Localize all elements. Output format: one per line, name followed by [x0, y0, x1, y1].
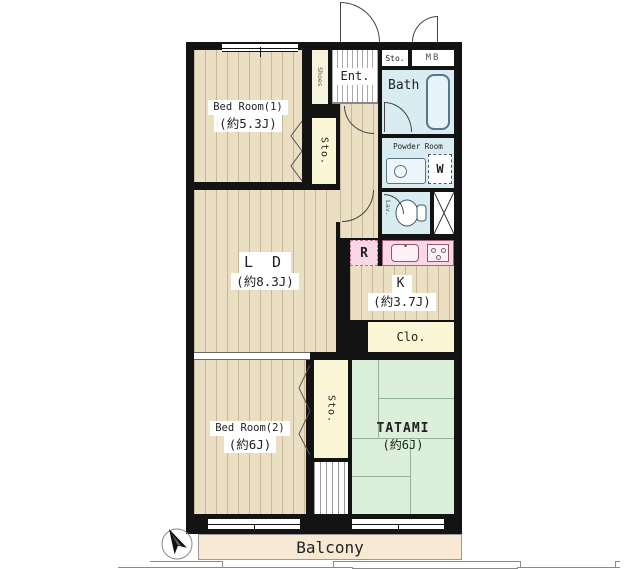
powder-room-label: Powder Room — [382, 142, 454, 151]
shaft-x-icon — [434, 192, 454, 234]
refrigerator-space: R — [350, 240, 378, 266]
sliding-partition — [194, 352, 310, 360]
window-tick — [260, 47, 261, 57]
entrance-name: Ent. — [336, 68, 375, 85]
room-tatami: TATAMI (約6J) — [352, 360, 454, 514]
washing-machine-label: W — [436, 162, 443, 176]
bathtub-icon — [426, 74, 450, 130]
washbasin-icon — [386, 158, 426, 184]
sliding-door-track — [314, 462, 348, 514]
stove-icon — [427, 244, 449, 262]
bedroom2-label: Bed Room(2) (約6J) — [194, 360, 306, 514]
shoes-cabinet: Shoes — [312, 50, 328, 104]
meter-box: MB — [412, 50, 454, 66]
closet: Clo. — [368, 322, 454, 352]
meter-box-door-swing-icon — [412, 16, 438, 42]
kitchen-sink-icon — [391, 244, 419, 262]
bedroom1-window — [222, 43, 298, 52]
ld-name: L D — [239, 252, 291, 273]
floor-plan: Bed Room(1) (約5.3J) Shoes Ent. Sto. MB B… — [0, 0, 640, 569]
bedroom1-name: Bed Room(1) — [208, 100, 288, 115]
bedroom2-area: (約6J) — [224, 436, 277, 454]
tatami-area: (約6J) — [383, 436, 424, 453]
folding-door-icon — [290, 120, 302, 182]
bedroom1-label: Bed Room(1) (約5.3J) — [194, 50, 302, 182]
bedroom1-area: (約5.3J) — [214, 115, 282, 133]
room-entrance: Ent. — [332, 50, 378, 104]
refrigerator-label: R — [360, 246, 368, 261]
folding-door-icon — [298, 364, 310, 456]
room-ld: L D (約8.3J) — [194, 190, 336, 352]
kitchen-counter — [382, 240, 454, 266]
storage-top: Sto. — [382, 50, 408, 66]
storage-bottom: Sto. — [314, 360, 348, 458]
burner-icon — [431, 248, 436, 253]
storage-top-label: Sto. — [385, 54, 404, 63]
room-bedroom2: Bed Room(2) (約6J) — [194, 360, 306, 514]
balcony: Balcony — [198, 534, 462, 560]
bedroom2-name: Bed Room(2) — [210, 421, 290, 436]
shoes-label: Shoes — [316, 67, 324, 87]
storage-hall: Sto. — [312, 118, 336, 184]
ld-label: L D (約8.3J) — [194, 190, 336, 352]
balcony-label: Balcony — [296, 538, 363, 557]
closet-label: Clo. — [397, 330, 426, 344]
front-door-swing-icon — [340, 2, 380, 42]
ld-area: (約8.3J) — [231, 273, 299, 291]
washbasin-bowl-icon — [394, 165, 407, 178]
north-arrow-icon — [156, 522, 198, 564]
faucet-icon — [404, 244, 407, 247]
kitchen-label: K (約3.7J) — [350, 266, 454, 320]
room-bedroom1: Bed Room(1) (約5.3J) — [194, 50, 302, 182]
burner-icon — [436, 255, 441, 260]
pipe-shaft — [434, 192, 454, 234]
entrance-label: Ent. — [332, 50, 378, 102]
room-kitchen: K (約3.7J) — [350, 266, 454, 320]
washing-machine: W — [428, 154, 452, 184]
tatami-label: TATAMI (約6J) — [352, 360, 454, 514]
kitchen-name: K — [392, 275, 413, 293]
storage-bottom-label: Sto. — [326, 395, 337, 423]
burner-icon — [441, 248, 446, 253]
kitchen-area: (約3.7J) — [368, 293, 436, 311]
bedroom2-window — [208, 518, 300, 530]
tatami-window — [352, 518, 444, 530]
tatami-name: TATAMI — [377, 421, 430, 436]
ld-door-opening — [336, 190, 340, 222]
meter-box-label: MB — [426, 53, 441, 63]
window-tick — [398, 524, 399, 534]
room-powder: Powder Room W — [382, 138, 454, 188]
storage-hall-label: Sto. — [319, 137, 330, 165]
window-tick — [254, 524, 255, 534]
bath-label: Bath — [388, 78, 419, 93]
